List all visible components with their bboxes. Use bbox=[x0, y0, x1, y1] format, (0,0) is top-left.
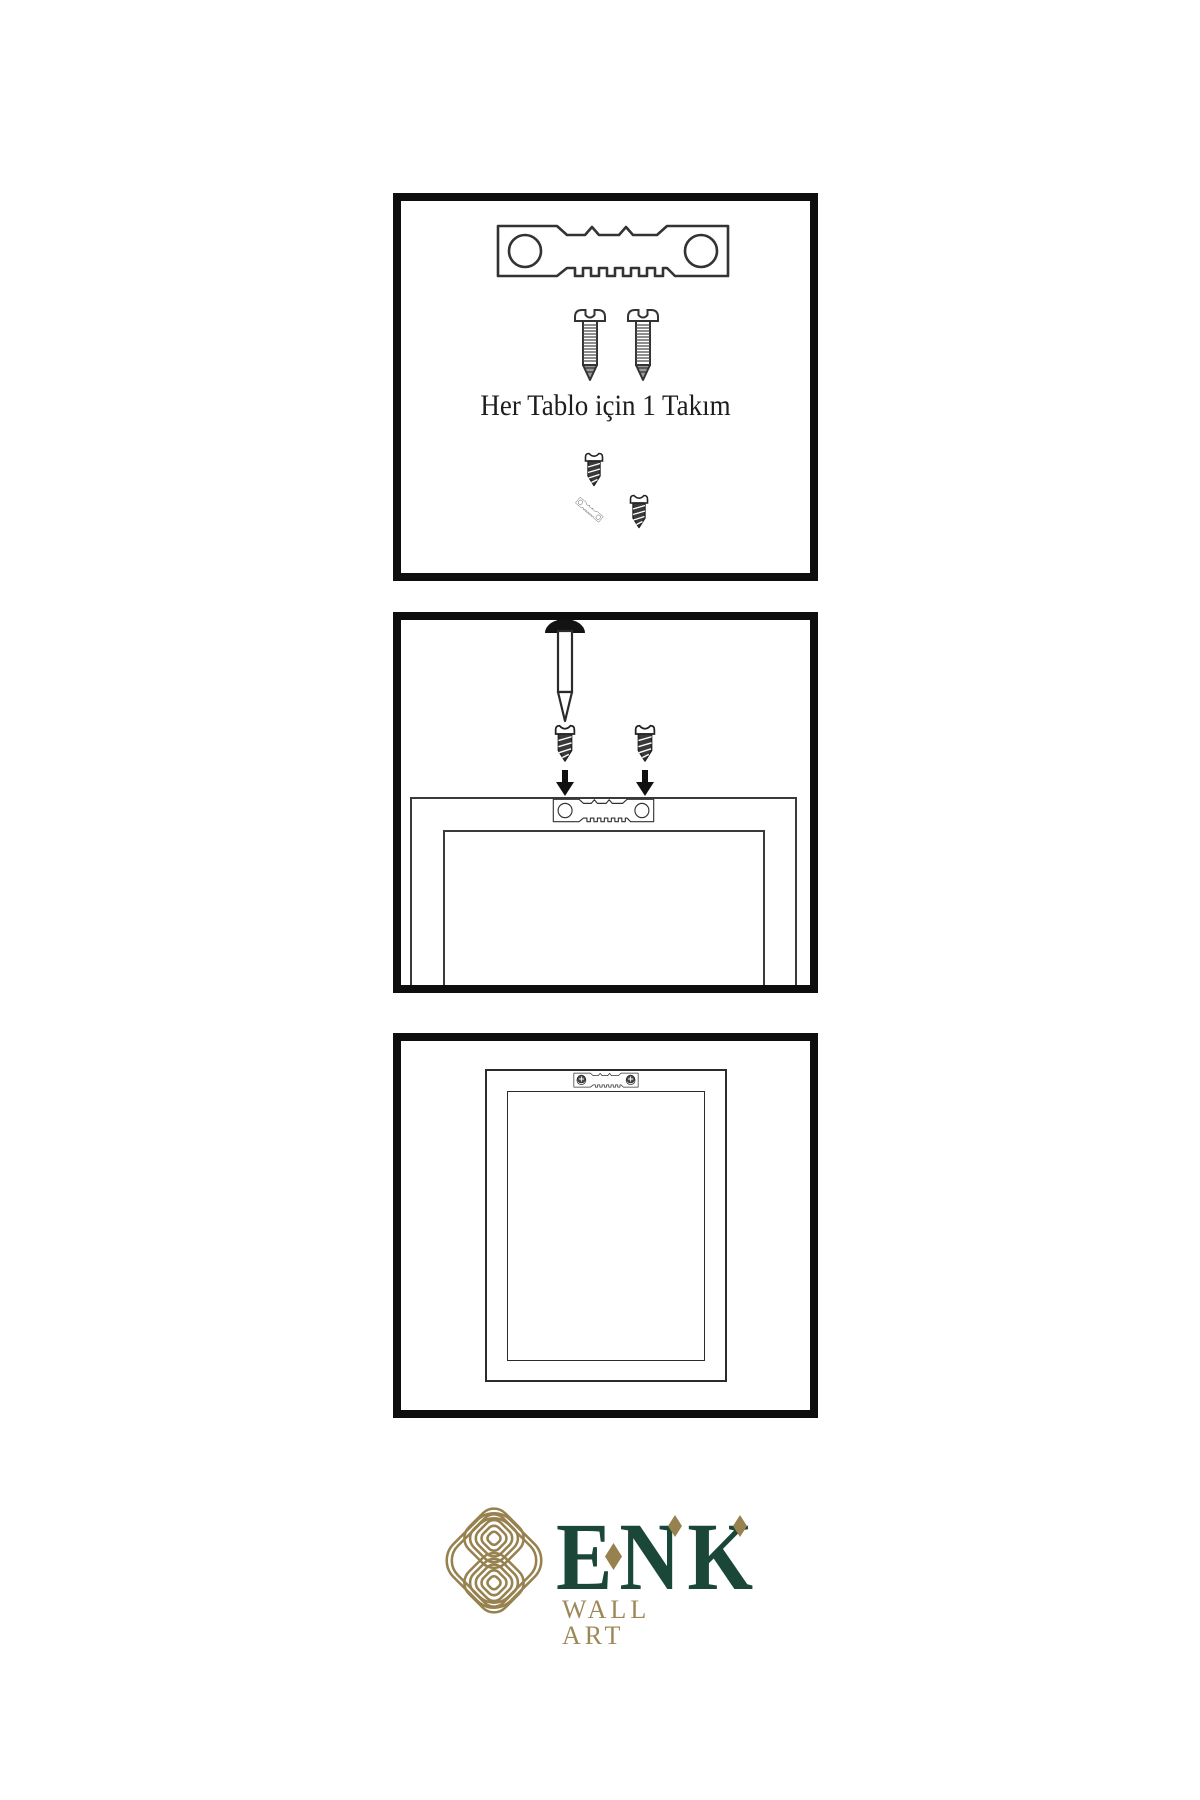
phillips-screw-icon bbox=[627, 1075, 635, 1083]
logo-brand-text: ENK bbox=[556, 1509, 760, 1605]
wall-nail-icon bbox=[543, 618, 587, 724]
dark-screw-icon bbox=[634, 724, 656, 766]
down-arrow-icon bbox=[636, 770, 654, 796]
down-arrow-icon bbox=[556, 770, 574, 796]
screw-icon bbox=[572, 307, 608, 383]
instruction-sheet: Her Tablo için 1 Takım bbox=[0, 0, 1200, 1800]
panel-hardware-kit: Her Tablo için 1 Takım bbox=[393, 193, 818, 581]
mounted-sawtooth-hanger-icon bbox=[573, 1070, 639, 1088]
screw-icon bbox=[625, 307, 661, 383]
panel-mounting-steps bbox=[393, 612, 818, 993]
interlaced-knot-icon bbox=[435, 1497, 553, 1624]
panel-finished-frame bbox=[393, 1033, 818, 1418]
panel1-caption: Her Tablo için 1 Takım bbox=[421, 389, 789, 423]
frame-back-canvas bbox=[443, 830, 765, 993]
dark-screw-icon bbox=[554, 724, 576, 766]
logo-tagline-text: WALL ART bbox=[562, 1597, 649, 1649]
sawtooth-hanger-icon bbox=[552, 798, 655, 823]
hung-frame-canvas bbox=[507, 1091, 705, 1361]
phillips-screw-icon bbox=[577, 1075, 585, 1083]
angled-hanger-with-screws-icon bbox=[571, 448, 665, 552]
sawtooth-hanger-icon bbox=[495, 223, 731, 279]
